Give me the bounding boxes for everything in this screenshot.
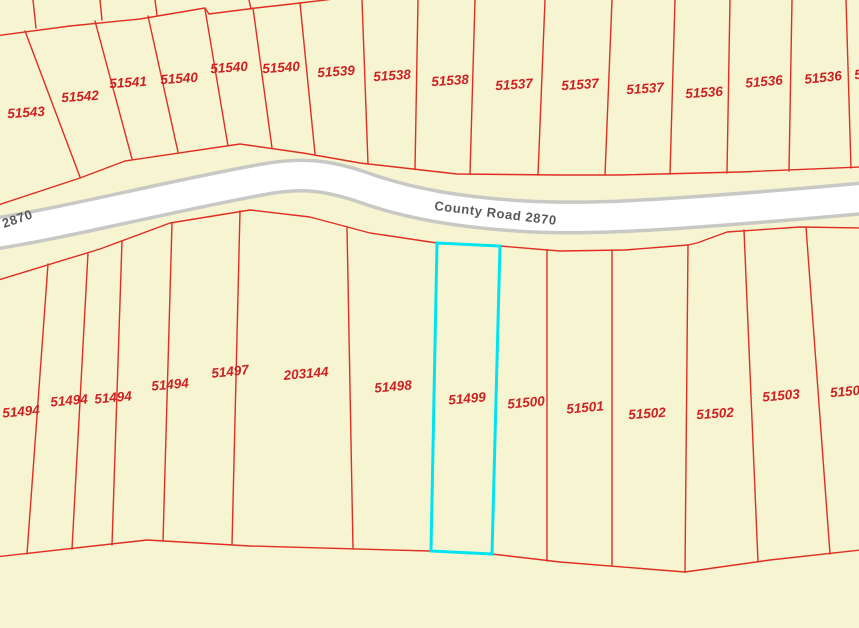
parcel-label-top-6: 51539 — [317, 63, 356, 81]
parcel-label-top-3: 51540 — [160, 70, 199, 88]
parcel-label-top-8: 51538 — [431, 72, 470, 90]
parcel-label-top-2: 51541 — [109, 74, 148, 92]
parcel-label-top-1: 51542 — [61, 88, 100, 106]
parcel-label-bottom-11: 51502 — [696, 405, 735, 423]
parcel-label-bottom-13: 5150 — [829, 383, 859, 401]
parcel-map-viewport[interactable]: 51543 51542 51541 51540 51540 51540 5153… — [0, 0, 859, 628]
parcel-label-bottom-10: 51502 — [628, 405, 667, 423]
map-background — [0, 0, 859, 628]
parcel-label-top-0: 51543 — [7, 104, 46, 122]
parcel-label-top-11: 51537 — [626, 80, 666, 98]
parcel-label-top-7: 51538 — [373, 67, 412, 85]
parcel-label-top-12: 51536 — [685, 84, 724, 102]
parcel-label-top-10: 51537 — [561, 76, 601, 94]
parcel-label-top-5: 51540 — [262, 59, 301, 77]
parcel-label-top-4: 51540 — [210, 59, 249, 77]
parcel-label-top-15: 5 — [854, 67, 859, 83]
parcel-label-top-9: 51537 — [495, 76, 535, 94]
parcel-map-canvas[interactable]: 51543 51542 51541 51540 51540 51540 5153… — [0, 0, 859, 628]
